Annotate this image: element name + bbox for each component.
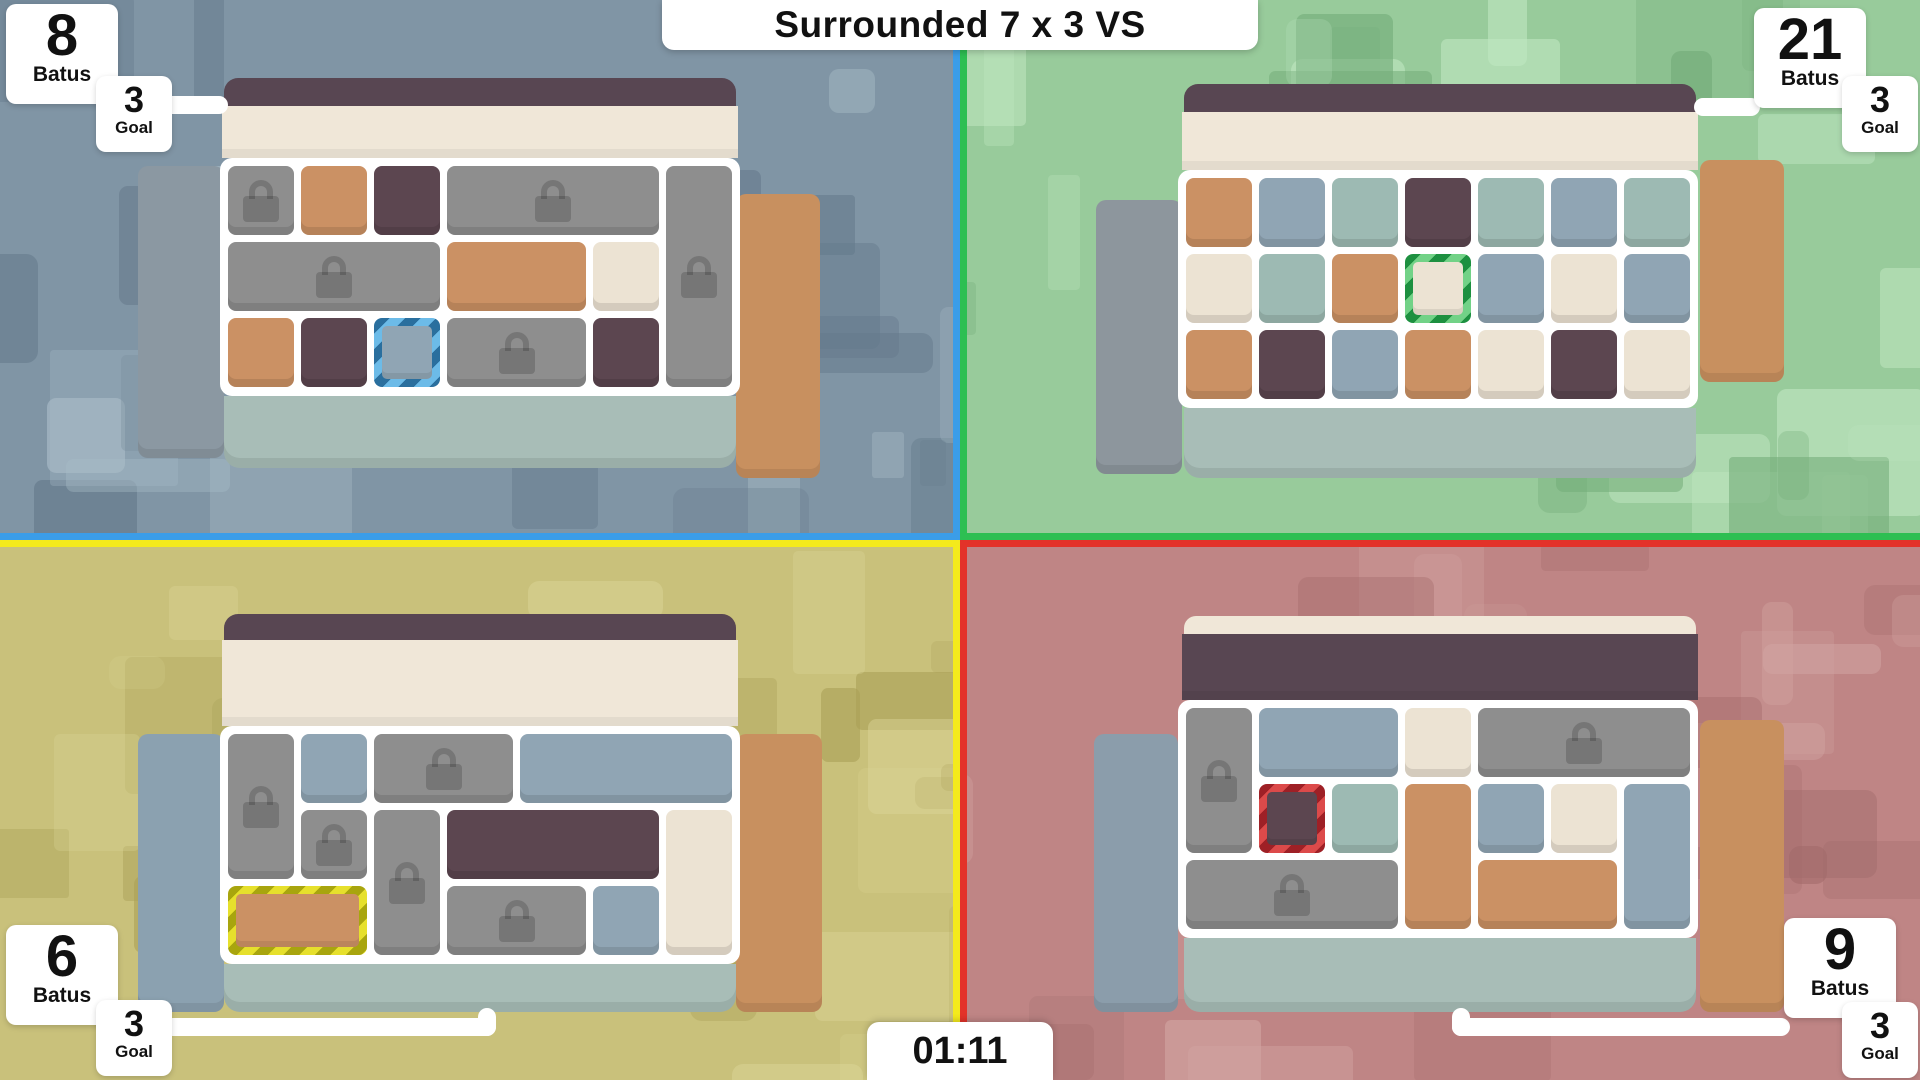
goal-label: Goal — [1842, 1044, 1918, 1064]
board-tile[interactable] — [1332, 254, 1398, 323]
score-value: 8 — [6, 6, 118, 67]
board-footer-band — [1184, 408, 1696, 478]
board-tile[interactable] — [1405, 784, 1471, 929]
goal-label: Goal — [1842, 118, 1918, 138]
board-tile[interactable] — [447, 886, 586, 955]
score-value: 21 — [1754, 10, 1866, 71]
board-tile[interactable] — [1259, 330, 1325, 399]
goal-value: 3 — [96, 1004, 172, 1044]
lock-icon — [499, 900, 535, 942]
tile-face — [593, 886, 659, 955]
board-tile[interactable] — [228, 734, 294, 879]
mosaic-square — [872, 432, 904, 478]
board-tile[interactable] — [1186, 330, 1252, 399]
goal-card: 3 Goal — [1842, 1002, 1918, 1078]
score-label: Batus — [1784, 977, 1896, 1001]
tile-face — [301, 810, 367, 879]
board-tile[interactable] — [1478, 860, 1617, 929]
tile-face — [1478, 330, 1544, 399]
tile-face — [1478, 860, 1617, 929]
board-tile[interactable] — [1478, 330, 1544, 399]
board-header-band — [1184, 616, 1696, 636]
tile-face — [1405, 178, 1471, 247]
puzzle-board — [220, 726, 740, 964]
tile-face — [1186, 860, 1398, 929]
mosaic-square — [829, 69, 875, 113]
tile-face — [1405, 708, 1471, 777]
tile-face — [301, 318, 367, 387]
tile-face — [1259, 254, 1325, 323]
goal-card: 3 Goal — [96, 1000, 172, 1076]
score-value: 6 — [6, 927, 118, 988]
board-tile[interactable] — [1478, 178, 1544, 247]
board-tile[interactable] — [1186, 708, 1252, 853]
mosaic-square — [1892, 595, 1920, 646]
tile-face — [1267, 792, 1317, 845]
quadrant-bottom-right: 9 Batus 3 Goal — [960, 540, 1920, 1080]
tile-face — [1259, 330, 1325, 399]
tile-face — [1624, 178, 1690, 247]
selection-cursor-tile[interactable] — [228, 886, 367, 955]
board-footer-band — [224, 396, 736, 468]
quadrant-top-right: 21 Batus 3 Goal — [960, 0, 1920, 540]
tile-grid — [1186, 708, 1690, 929]
quadrant-top-left: 8 Batus 3 Goal — [0, 0, 960, 540]
lock-icon — [426, 748, 462, 790]
tile-face — [382, 326, 432, 379]
badge-connector — [1452, 1018, 1790, 1036]
mosaic-square — [109, 656, 166, 689]
goal-value: 3 — [96, 80, 172, 120]
tile-face — [666, 810, 732, 955]
board-header-band — [1182, 112, 1698, 170]
lock-icon — [1274, 874, 1310, 916]
board-tile[interactable] — [593, 242, 659, 311]
board-tile[interactable] — [1186, 254, 1252, 323]
divider-blue-vertical — [953, 0, 960, 540]
tile-face — [1186, 178, 1252, 247]
lock-icon — [243, 786, 279, 828]
tile-face — [1478, 178, 1544, 247]
puzzle-board — [1178, 170, 1698, 408]
board-header-band — [222, 106, 738, 158]
lock-icon — [681, 256, 717, 298]
board-tile[interactable] — [1624, 784, 1690, 929]
board-tile[interactable] — [1186, 178, 1252, 247]
board-tile[interactable] — [1332, 784, 1398, 853]
board-tile[interactable] — [1551, 330, 1617, 399]
mosaic-square — [1541, 544, 1649, 571]
board-top-bar — [1182, 634, 1698, 700]
board-footer-band — [1184, 938, 1696, 1012]
tile-face — [374, 734, 513, 803]
match-title: Surrounded 7 x 3 VS — [662, 0, 1258, 50]
badge-connector — [164, 1018, 496, 1036]
mosaic-square — [1823, 841, 1920, 900]
board-tile[interactable] — [228, 166, 294, 235]
badge-connector-stub — [1452, 1008, 1470, 1036]
board-footer-band — [224, 964, 736, 1012]
board-tile[interactable] — [1551, 254, 1617, 323]
divider-red-vertical — [960, 540, 967, 1080]
board-tile[interactable] — [301, 734, 367, 803]
badge-connector-stub — [478, 1008, 496, 1036]
board-tile[interactable] — [1405, 330, 1471, 399]
board-top-bar — [224, 78, 736, 108]
board-tile[interactable] — [228, 318, 294, 387]
puzzle-board — [220, 158, 740, 396]
board-tile[interactable] — [666, 810, 732, 955]
lock-icon — [243, 180, 279, 222]
mosaic-square — [1165, 1020, 1262, 1080]
tile-face — [593, 318, 659, 387]
lock-icon — [1201, 760, 1237, 802]
match-timer: 01:11 — [867, 1022, 1053, 1080]
puzzle-board — [1178, 700, 1698, 938]
mosaic-square — [793, 551, 865, 674]
tray-tile-right — [736, 734, 822, 1012]
selection-cursor-tile[interactable] — [1259, 784, 1325, 853]
board-tile[interactable] — [666, 166, 732, 387]
tile-face — [447, 886, 586, 955]
tile-face — [1478, 784, 1544, 853]
goal-value: 3 — [1842, 80, 1918, 120]
board-tile[interactable] — [1405, 708, 1471, 777]
lock-icon — [535, 180, 571, 222]
selection-cursor-tile[interactable] — [1405, 254, 1471, 323]
tile-face — [1332, 330, 1398, 399]
mosaic-square — [194, 0, 223, 100]
tile-face — [1551, 178, 1617, 247]
tile-face — [1478, 708, 1690, 777]
tile-face — [1624, 254, 1690, 323]
board-tile[interactable] — [1624, 330, 1690, 399]
tile-face — [236, 894, 359, 947]
goal-label: Goal — [96, 1042, 172, 1062]
board-tile[interactable] — [593, 318, 659, 387]
board-tile[interactable] — [1478, 708, 1690, 777]
tile-face — [1332, 784, 1398, 853]
mosaic-square — [1848, 425, 1920, 461]
mosaic-square — [815, 932, 960, 1021]
board-tile[interactable] — [447, 318, 586, 387]
tile-face — [1413, 262, 1463, 315]
mosaic-square — [1763, 644, 1881, 674]
mosaic-square — [920, 440, 946, 485]
divider-blue-horizontal — [0, 533, 960, 540]
lock-icon — [389, 862, 425, 904]
game-screen: 8 Batus 3 Goal 21 Batus 3 Goal — [0, 0, 1920, 1080]
tray-tile-right — [736, 194, 820, 478]
tile-face — [520, 734, 732, 803]
board-tile[interactable] — [1186, 860, 1398, 929]
tile-face — [301, 734, 367, 803]
tile-face — [301, 166, 367, 235]
tray-tile-right — [1700, 160, 1784, 382]
tile-face — [1405, 330, 1471, 399]
board-tile[interactable] — [1551, 784, 1617, 853]
lock-icon — [499, 332, 535, 374]
board-tile[interactable] — [1332, 178, 1398, 247]
tile-face — [1259, 178, 1325, 247]
tile-face — [1186, 330, 1252, 399]
tile-face — [1551, 330, 1617, 399]
tile-face — [1551, 784, 1617, 853]
board-tile[interactable] — [301, 318, 367, 387]
board-tile[interactable] — [301, 810, 367, 879]
tile-face — [447, 166, 659, 235]
tile-face — [1186, 708, 1252, 853]
tile-face — [228, 318, 294, 387]
board-tile[interactable] — [1332, 330, 1398, 399]
board-tile[interactable] — [1551, 178, 1617, 247]
board-tile[interactable] — [447, 166, 659, 235]
tile-face — [1259, 708, 1398, 777]
mosaic-square — [1729, 457, 1889, 540]
tray-tile-left — [138, 166, 224, 458]
tile-face — [593, 242, 659, 311]
quadrant-bottom-left: 6 Batus 3 Goal — [0, 540, 960, 1080]
tile-face — [228, 242, 440, 311]
lock-icon — [1566, 722, 1602, 764]
tray-tile-left — [138, 734, 224, 1012]
mosaic-square — [732, 1064, 863, 1080]
tile-face — [1405, 784, 1471, 929]
board-tile[interactable] — [1259, 178, 1325, 247]
board-tile[interactable] — [1259, 708, 1398, 777]
mosaic-square — [1286, 19, 1332, 86]
tile-face — [1478, 254, 1544, 323]
lock-icon — [316, 256, 352, 298]
goal-value: 3 — [1842, 1006, 1918, 1046]
tile-face — [447, 242, 586, 311]
tray-tile-left — [1094, 734, 1178, 1012]
divider-green-vertical — [960, 0, 967, 540]
board-tile[interactable] — [1624, 178, 1690, 247]
tray-tile-left — [1096, 200, 1182, 474]
divider-yellow-horizontal — [0, 540, 960, 547]
goal-card: 3 Goal — [1842, 76, 1918, 152]
board-header-band — [222, 640, 738, 726]
mosaic-square — [821, 688, 860, 762]
board-tile[interactable] — [520, 734, 732, 803]
score-value: 9 — [1784, 920, 1896, 981]
tile-face — [1332, 254, 1398, 323]
board-tile[interactable] — [447, 810, 659, 879]
tile-grid — [228, 166, 732, 387]
tile-face — [1551, 254, 1617, 323]
tile-face — [374, 810, 440, 955]
board-tile[interactable] — [301, 166, 367, 235]
tile-face — [228, 734, 294, 879]
board-tile[interactable] — [1259, 254, 1325, 323]
lock-icon — [316, 824, 352, 866]
board-tile[interactable] — [447, 242, 586, 311]
badge-connector — [1694, 98, 1760, 116]
tile-face — [374, 166, 440, 235]
tile-face — [447, 318, 586, 387]
mosaic-square — [1414, 1000, 1551, 1080]
divider-green-horizontal — [960, 533, 1920, 540]
tile-face — [228, 166, 294, 235]
tile-face — [1332, 178, 1398, 247]
mosaic-square — [0, 254, 38, 363]
divider-yellow-vertical — [953, 540, 960, 1080]
board-tile[interactable] — [374, 810, 440, 955]
tile-face — [1186, 254, 1252, 323]
board-tile[interactable] — [374, 734, 513, 803]
tile-grid — [228, 734, 732, 955]
selection-cursor-tile[interactable] — [374, 318, 440, 387]
board-tile[interactable] — [1405, 178, 1471, 247]
mosaic-square — [1880, 268, 1920, 368]
board-top-bar — [224, 614, 736, 642]
tile-face — [1624, 784, 1690, 929]
board-tile[interactable] — [1478, 784, 1544, 853]
divider-red-horizontal — [960, 540, 1920, 547]
tile-grid — [1186, 178, 1690, 399]
tile-face — [1624, 330, 1690, 399]
tile-face — [447, 810, 659, 879]
board-tile[interactable] — [374, 166, 440, 235]
board-tile[interactable] — [228, 242, 440, 311]
board-tile[interactable] — [593, 886, 659, 955]
tile-face — [666, 166, 732, 387]
mosaic-square — [1048, 175, 1081, 291]
board-top-bar — [1184, 84, 1696, 114]
goal-card: 3 Goal — [96, 76, 172, 152]
board-tile[interactable] — [1478, 254, 1544, 323]
tray-tile-right — [1700, 720, 1784, 1012]
board-tile[interactable] — [1624, 254, 1690, 323]
mosaic-square — [54, 734, 140, 851]
goal-label: Goal — [96, 118, 172, 138]
